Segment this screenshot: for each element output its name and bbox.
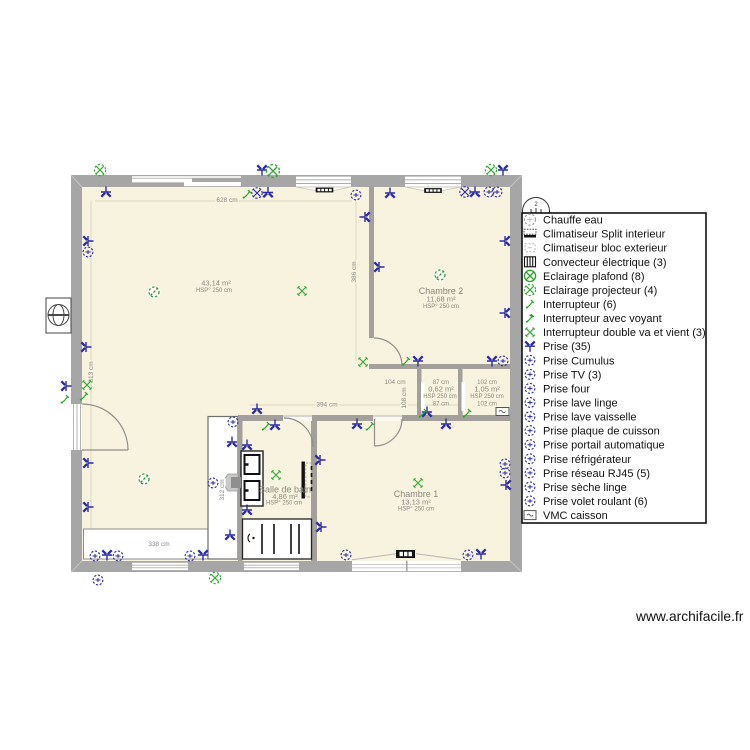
svg-text:Chauffe eau: Chauffe eau bbox=[543, 215, 603, 227]
svg-text:HSP° 250 cm: HSP° 250 cm bbox=[266, 501, 302, 507]
svg-text:HSP° 250 cm: HSP° 250 cm bbox=[423, 304, 459, 310]
svg-text:Prise TV (3): Prise TV (3) bbox=[543, 369, 601, 381]
svg-text:Prise Cumulus: Prise Cumulus bbox=[543, 355, 615, 367]
svg-text:Prise sèche linge: Prise sèche linge bbox=[543, 482, 627, 494]
svg-text:www.archifacile.fr: www.archifacile.fr bbox=[635, 609, 744, 624]
svg-text:87 cm: 87 cm bbox=[433, 402, 449, 408]
svg-text:Climatiseur bloc exterieur: Climatiseur bloc exterieur bbox=[543, 243, 667, 255]
svg-text:386 cm: 386 cm bbox=[351, 261, 358, 282]
svg-text:VMC caisson: VMC caisson bbox=[543, 510, 608, 522]
svg-text:Interrupteur (6): Interrupteur (6) bbox=[543, 299, 616, 311]
svg-text:Prise four: Prise four bbox=[543, 383, 590, 395]
svg-text:Prise plaque de cuisson: Prise plaque de cuisson bbox=[543, 426, 660, 438]
svg-text:43,14 m²: 43,14 m² bbox=[201, 279, 231, 288]
svg-text:Prise portail automatique: Prise portail automatique bbox=[543, 440, 665, 452]
svg-text:628 cm: 628 cm bbox=[216, 197, 237, 204]
svg-text:Climatiseur Split interieur: Climatiseur Split interieur bbox=[543, 229, 666, 241]
svg-text:HSP° 250 cm: HSP° 250 cm bbox=[398, 507, 434, 513]
svg-text:Interrupteur double va et vien: Interrupteur double va et vient (3) bbox=[543, 327, 706, 339]
svg-text:Convecteur électrique (3): Convecteur électrique (3) bbox=[543, 257, 667, 269]
svg-text:Prise volet roulant (6): Prise volet roulant (6) bbox=[543, 496, 648, 508]
svg-text:HSP 250 cm: HSP 250 cm bbox=[423, 394, 457, 400]
svg-text:Prise lave linge: Prise lave linge bbox=[543, 398, 618, 410]
svg-text:338 cm: 338 cm bbox=[148, 541, 169, 548]
svg-text:13,13 m²: 13,13 m² bbox=[401, 498, 431, 507]
svg-text:HSP 250 cm: HSP 250 cm bbox=[470, 394, 504, 400]
svg-text:HSP° 250 cm: HSP° 250 cm bbox=[196, 288, 232, 294]
svg-text:Eclairage projecteur (4): Eclairage projecteur (4) bbox=[543, 285, 657, 297]
svg-text:Eclairage plafond (8): Eclairage plafond (8) bbox=[543, 271, 645, 283]
svg-text:312 cm: 312 cm bbox=[219, 479, 226, 500]
svg-text:394 cm: 394 cm bbox=[316, 402, 337, 409]
svg-text:11,68 m²: 11,68 m² bbox=[426, 295, 456, 304]
svg-text:Interrupteur avec voyant: Interrupteur avec voyant bbox=[543, 313, 662, 325]
svg-text:0,62 m²: 0,62 m² bbox=[428, 385, 454, 394]
svg-text:Prise (35): Prise (35) bbox=[543, 341, 591, 353]
svg-text:108 cm: 108 cm bbox=[401, 387, 408, 408]
svg-text:1,05 m²: 1,05 m² bbox=[474, 385, 500, 394]
svg-text:813 cm: 813 cm bbox=[88, 361, 95, 382]
svg-text:Prise réfrigérateur: Prise réfrigérateur bbox=[543, 454, 631, 466]
svg-text:Prise réseau RJ45 (5): Prise réseau RJ45 (5) bbox=[543, 468, 650, 480]
svg-text:102 cm: 102 cm bbox=[477, 402, 497, 408]
svg-text:104 cm: 104 cm bbox=[384, 379, 405, 386]
svg-text:Prise lave vaisselle: Prise lave vaisselle bbox=[543, 412, 637, 424]
